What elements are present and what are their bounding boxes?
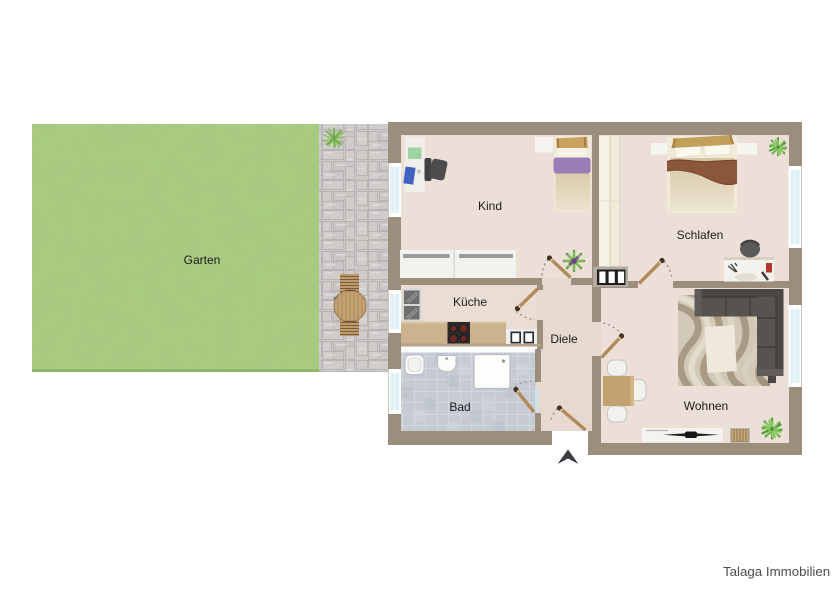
svg-text:Schlafen: Schlafen [677,228,724,242]
svg-text:Küche: Küche [453,295,487,309]
svg-text:Diele: Diele [550,332,578,346]
svg-text:Bad: Bad [449,400,470,414]
svg-text:Kind: Kind [478,199,502,213]
svg-text:Talaga Immobilien: Talaga Immobilien [723,564,830,579]
svg-text:Wohnen: Wohnen [684,399,728,413]
svg-text:Garten: Garten [184,253,221,267]
